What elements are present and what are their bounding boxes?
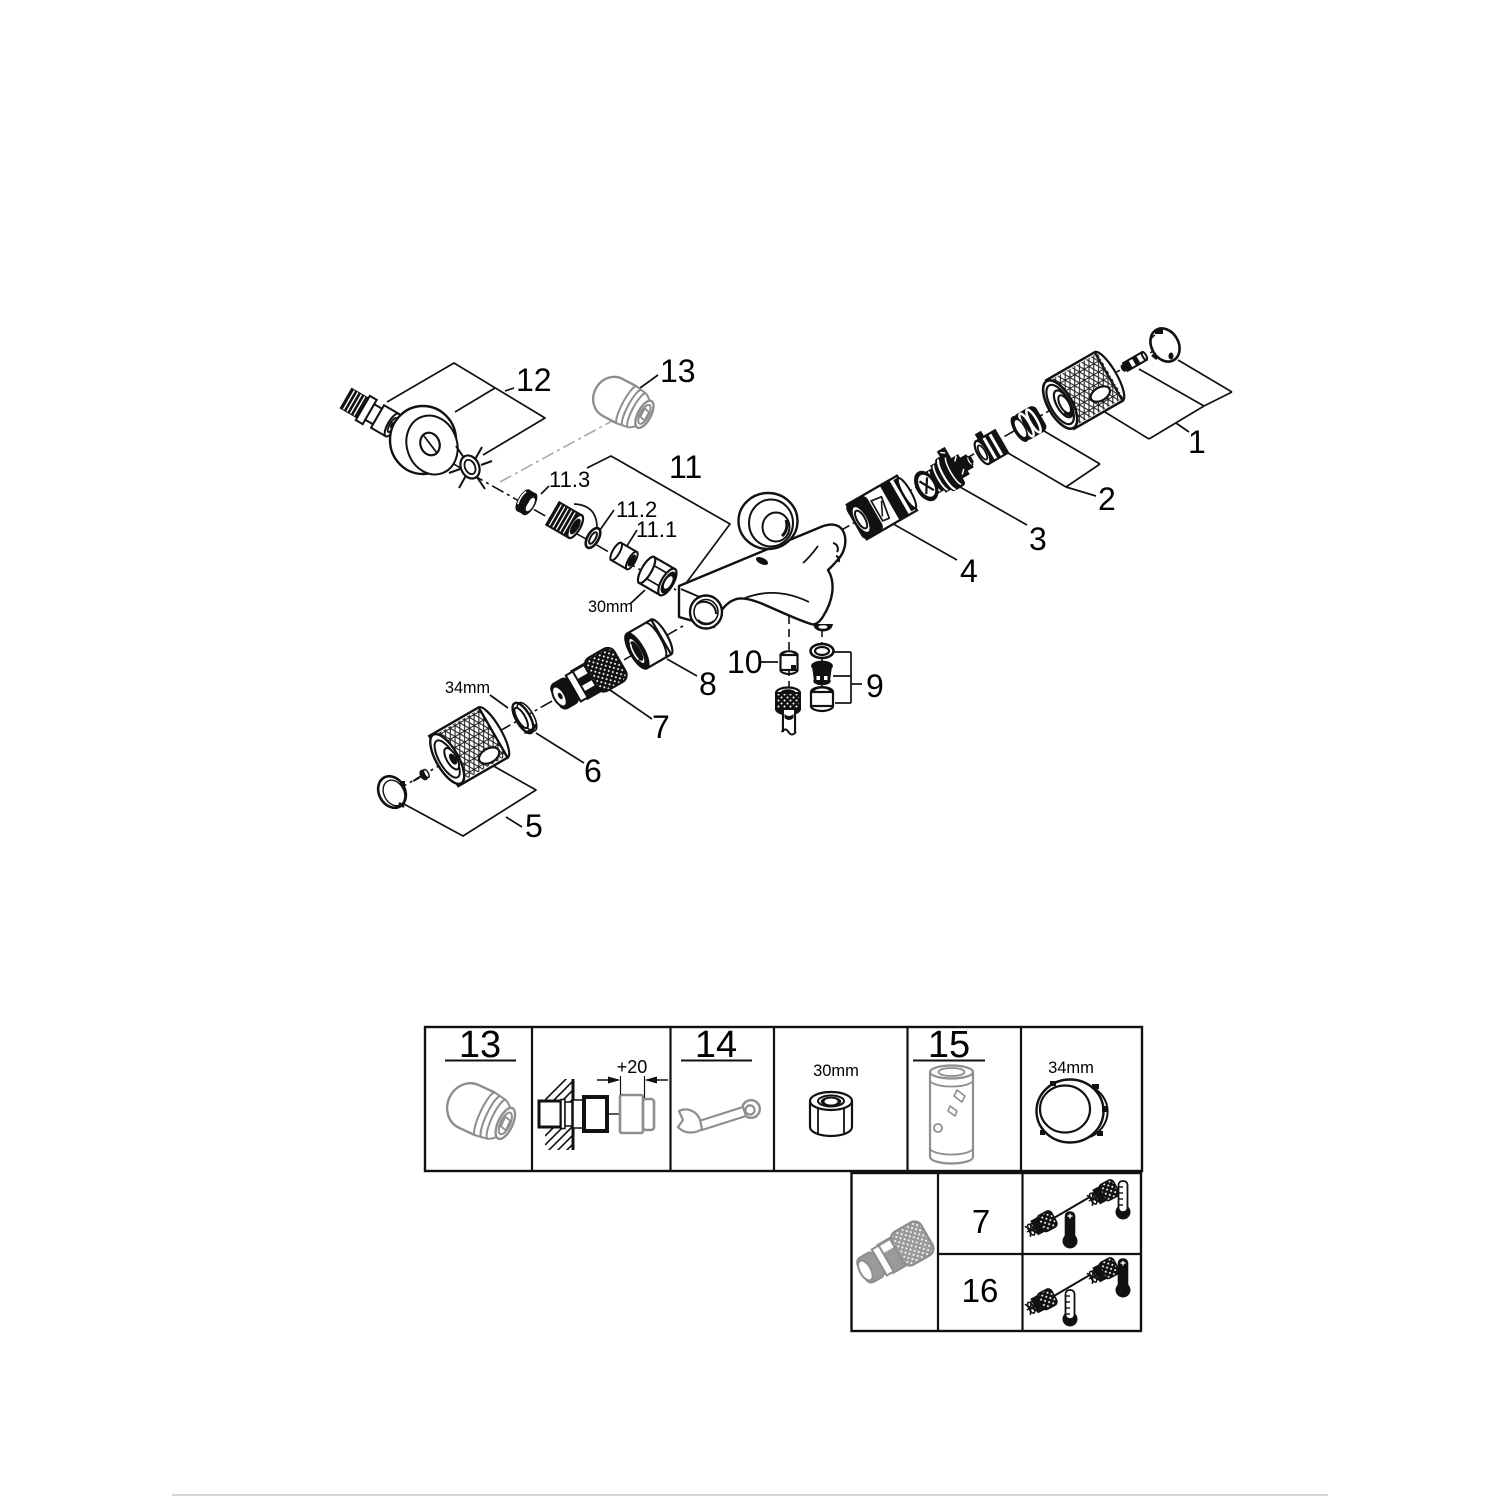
svg-text:12: 12 — [516, 362, 552, 398]
svg-text:34mm: 34mm — [1048, 1059, 1094, 1077]
svg-text:11.1: 11.1 — [636, 517, 677, 542]
svg-text:1: 1 — [1188, 424, 1206, 460]
svg-text:11.3: 11.3 — [549, 467, 590, 492]
svg-text:16: 16 — [962, 1272, 999, 1309]
svg-text:10: 10 — [727, 644, 763, 680]
svg-text:4: 4 — [960, 553, 978, 589]
svg-text:3: 3 — [1029, 521, 1047, 557]
svg-text:2: 2 — [1098, 481, 1116, 517]
svg-text:6: 6 — [584, 753, 602, 789]
svg-text:9: 9 — [866, 668, 884, 704]
svg-text:7: 7 — [972, 1203, 990, 1240]
svg-text:30mm: 30mm — [588, 598, 633, 616]
svg-text:30mm: 30mm — [813, 1062, 859, 1080]
svg-text:+20: +20 — [617, 1057, 648, 1077]
svg-text:7: 7 — [652, 709, 670, 745]
svg-text:5: 5 — [525, 808, 543, 844]
svg-text:13: 13 — [660, 353, 696, 389]
svg-text:11: 11 — [669, 449, 702, 485]
svg-text:8: 8 — [699, 666, 717, 702]
svg-text:34mm: 34mm — [445, 679, 490, 697]
